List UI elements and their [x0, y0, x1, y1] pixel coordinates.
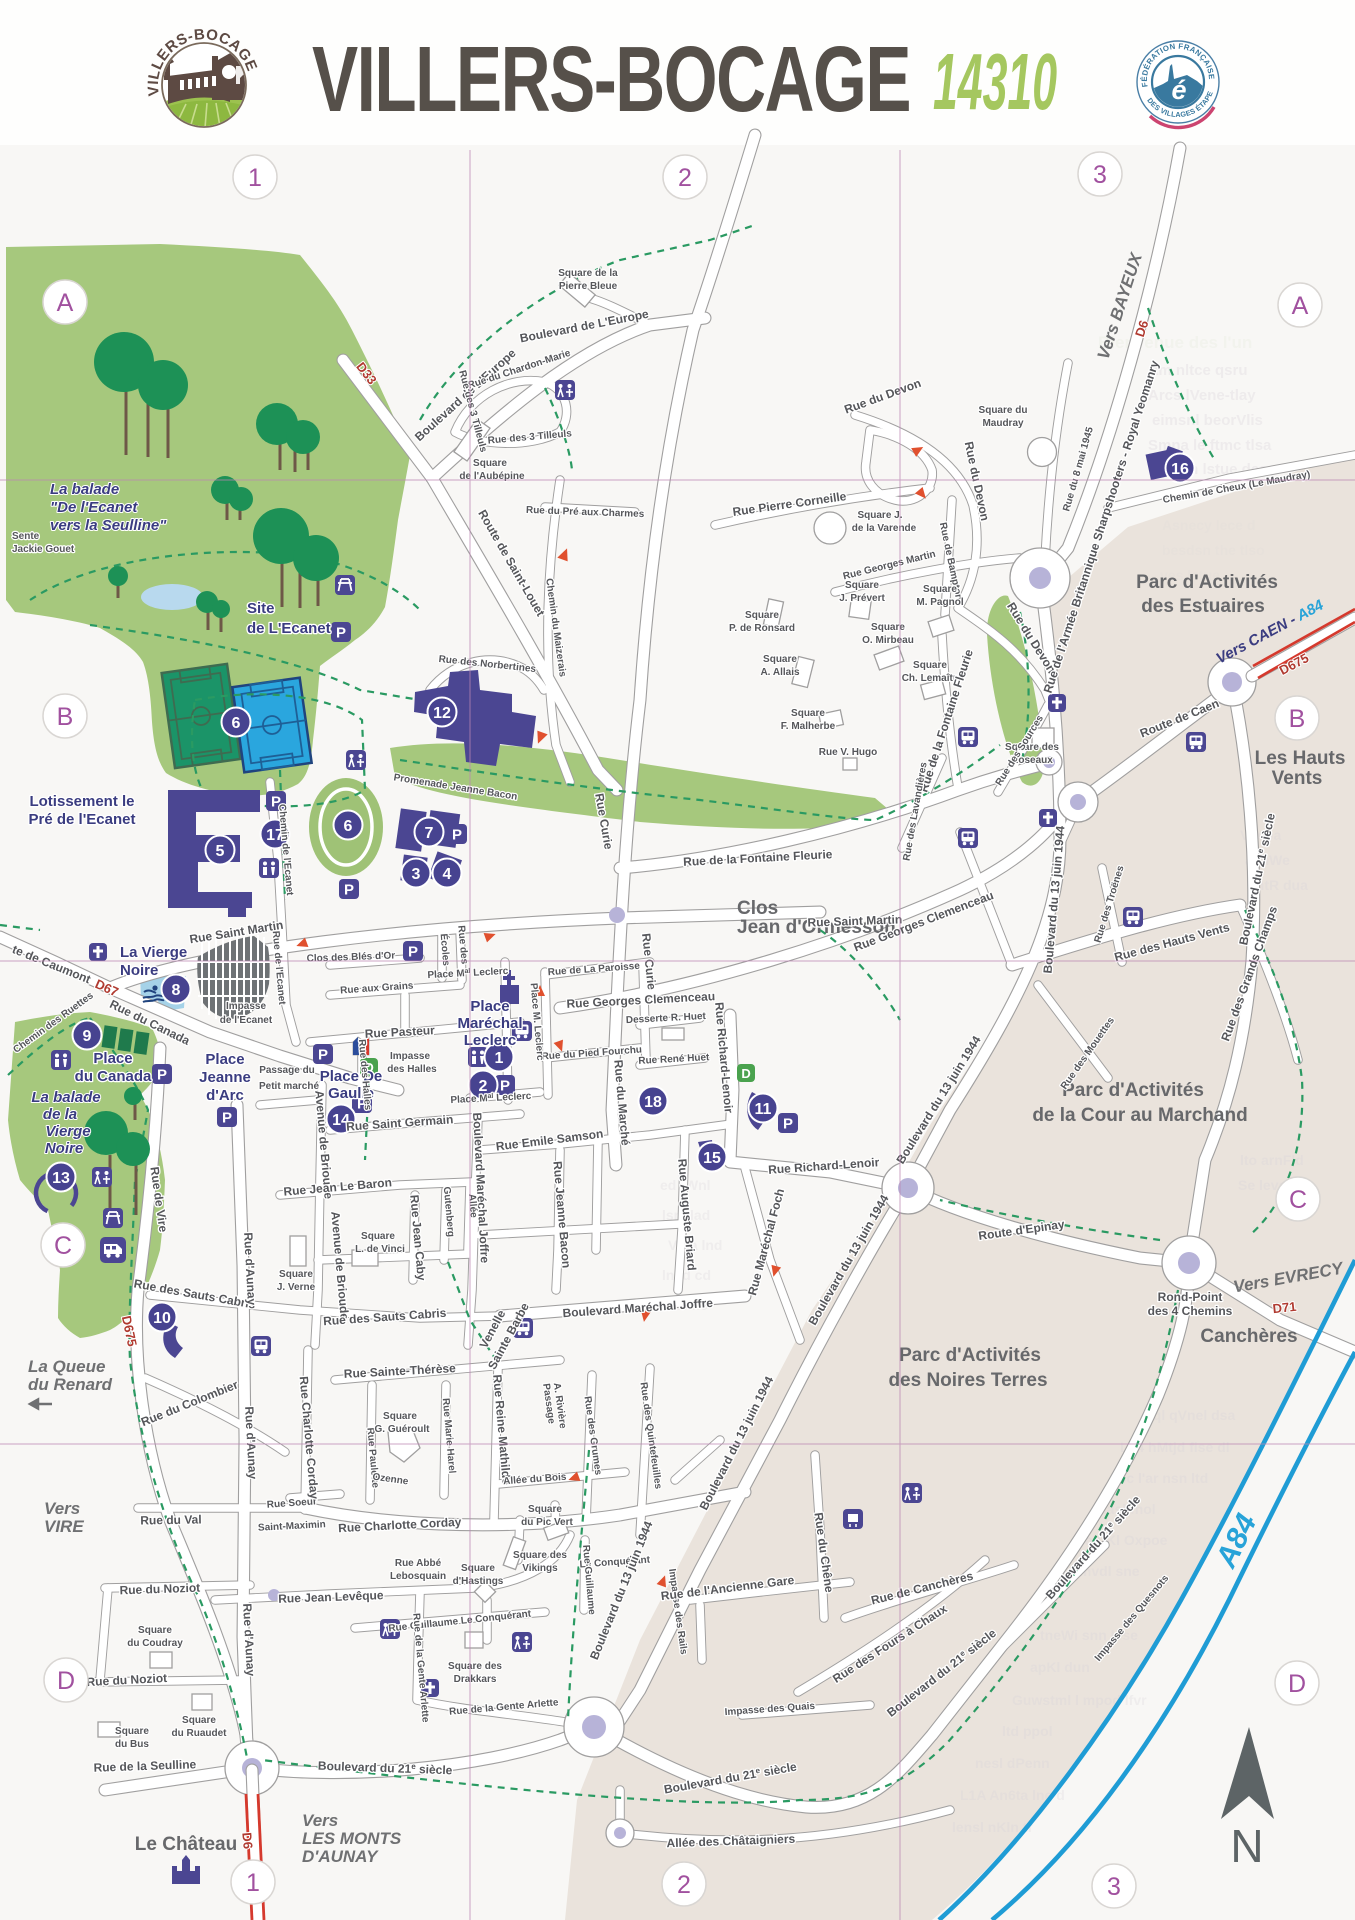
svg-text:N: N — [1230, 1820, 1263, 1872]
svg-text:Rue du Noziot: Rue du Noziot — [119, 1581, 200, 1598]
svg-text:eimsnl beorVlis: eimsnl beorVlis — [1152, 412, 1263, 429]
svg-text:La Queue: La Queue — [28, 1357, 105, 1376]
svg-text:Sente: Sente — [12, 531, 40, 542]
svg-text:de la: de la — [43, 1106, 77, 1123]
svg-text:10: 10 — [153, 1310, 171, 1327]
svg-text:Lebosquain: Lebosquain — [390, 1571, 446, 1582]
svg-text:L. de Vinci: L. de Vinci — [355, 1244, 405, 1255]
svg-text:Vers: Vers — [302, 1811, 338, 1830]
svg-text:Vikings: Vikings — [522, 1563, 558, 1574]
svg-text:Place: Place — [470, 998, 509, 1015]
svg-text:apKl dun: apKl dun — [1030, 1659, 1090, 1675]
svg-text:Asnecy lece d: Asnecy lece d — [1162, 517, 1255, 533]
svg-text:Impasse: Impasse — [390, 1051, 430, 1062]
svg-text:Maudray: Maudray — [982, 418, 1024, 429]
svg-text:D'AUNAY: D'AUNAY — [302, 1847, 379, 1866]
svg-text:D71: D71 — [1272, 1299, 1297, 1316]
svg-text:A. Allais: A. Allais — [760, 667, 800, 678]
svg-text:Lotissement le: Lotissement le — [29, 793, 134, 810]
svg-text:9: 9 — [83, 1028, 92, 1045]
svg-text:"De l'Ecanet: "De l'Ecanet — [50, 499, 138, 516]
svg-text:Pré de l'Ecanet: Pré de l'Ecanet — [29, 811, 136, 828]
svg-text:Square: Square — [791, 708, 825, 719]
svg-text:Drakkars: Drakkars — [454, 1674, 497, 1685]
svg-text:15: 15 — [703, 1150, 721, 1167]
svg-text:11: 11 — [755, 1101, 772, 1118]
svg-text:G. Guéroult: G. Guéroult — [375, 1424, 431, 1435]
svg-text:D6: D6 — [239, 1832, 255, 1850]
svg-text:13: 13 — [52, 1170, 70, 1187]
svg-text:de l'Ecanet: de l'Ecanet — [220, 1015, 273, 1026]
svg-text:besdsn the tlso: besdsn the tlso — [1162, 542, 1265, 558]
svg-text:du Renard: du Renard — [28, 1375, 113, 1394]
svg-text:Square: Square — [279, 1269, 313, 1280]
svg-text:Parc d'Activités: Parc d'Activités — [1062, 1080, 1204, 1101]
svg-text:3: 3 — [1093, 161, 1107, 189]
svg-text:La Vierge: La Vierge — [120, 944, 187, 961]
svg-text:Vers: Vers — [44, 1499, 80, 1518]
svg-text:12: 12 — [433, 705, 451, 722]
svg-text:Place: Place — [93, 1050, 132, 1067]
svg-text:LES MONTS: LES MONTS — [302, 1829, 402, 1848]
svg-text:Maréchal: Maréchal — [457, 1015, 522, 1032]
svg-text:1: 1 — [495, 1050, 504, 1067]
svg-text:Square: Square — [473, 458, 507, 469]
svg-text:D: D — [57, 1667, 75, 1695]
svg-text:6: 6 — [344, 818, 353, 835]
svg-text:Pierre Bleue: Pierre Bleue — [559, 281, 618, 292]
svg-text:2: 2 — [678, 164, 692, 192]
svg-text:Bienvenue des l'un: Bienvenue des l'un — [1098, 333, 1252, 352]
svg-text:Clos: Clos — [737, 898, 778, 919]
svg-text:B: B — [57, 703, 74, 731]
svg-text:Site: Site — [247, 600, 275, 617]
svg-text:M. Pagnol: M. Pagnol — [916, 597, 963, 608]
svg-text:ltd ppol: ltd ppol — [1002, 1723, 1053, 1739]
svg-text:Canchères: Canchères — [1200, 1326, 1297, 1347]
svg-text:Square de la: Square de la — [558, 268, 618, 279]
svg-text:Square: Square — [923, 584, 957, 595]
svg-text:des Estuaires: des Estuaires — [1141, 596, 1265, 617]
svg-text:8: 8 — [172, 982, 181, 999]
svg-text:14310: 14310 — [933, 37, 1057, 126]
svg-text:d'Hastings: d'Hastings — [453, 1576, 504, 1587]
svg-text:A: A — [1292, 292, 1309, 320]
svg-text:du Bus: du Bus — [115, 1739, 149, 1750]
svg-text:Square: Square — [913, 660, 947, 671]
svg-text:A: A — [57, 289, 74, 317]
svg-text:Square: Square — [115, 1726, 149, 1737]
svg-text:Allée: Allée — [466, 1193, 479, 1218]
svg-text:Arcs lVene-tlay: Arcs lVene-tlay — [1148, 387, 1256, 404]
svg-text:vers la Seulline": vers la Seulline" — [50, 517, 167, 534]
svg-text:Noire: Noire — [45, 1140, 83, 1157]
svg-text:Rue Abbé: Rue Abbé — [395, 1558, 442, 1569]
svg-text:é: é — [1171, 75, 1186, 105]
svg-text:Square: Square — [138, 1625, 172, 1636]
svg-text:3: 3 — [1107, 1873, 1121, 1901]
svg-text:Rue V. Hugo: Rue V. Hugo — [819, 747, 878, 758]
svg-text:7: 7 — [425, 825, 434, 842]
svg-text:F. Malherbe: F. Malherbe — [781, 721, 836, 732]
svg-text:Square: Square — [383, 1411, 417, 1422]
svg-text:du Coudray: du Coudray — [127, 1638, 183, 1649]
svg-text:B: B — [1289, 705, 1306, 733]
svg-text:Rond-Point: Rond-Point — [1158, 1290, 1223, 1304]
svg-text:Place: Place — [205, 1051, 244, 1068]
svg-text:Le Château: Le Château — [135, 1834, 237, 1855]
svg-text:J. Prévert: J. Prévert — [839, 593, 885, 604]
svg-text:Square: Square — [763, 654, 797, 665]
svg-text:Leclerc: Leclerc — [464, 1032, 517, 1049]
svg-text:Square des: Square des — [513, 1550, 567, 1561]
svg-text:am nltce qsru: am nltce qsru — [1150, 362, 1248, 379]
svg-text:Square du: Square du — [979, 405, 1028, 416]
svg-text:Impasse: Impasse — [226, 1001, 266, 1012]
svg-text:6: 6 — [232, 715, 241, 732]
svg-text:des Halles: des Halles — [387, 1064, 437, 1075]
svg-text:C: C — [1289, 1186, 1307, 1214]
svg-text:La balade: La balade — [50, 481, 119, 498]
svg-text:Jackie Gouet: Jackie Gouet — [12, 544, 75, 555]
svg-text:des 4 Chemins: des 4 Chemins — [1148, 1304, 1233, 1318]
svg-text:16: 16 — [1171, 461, 1189, 478]
svg-text:Rue du Val: Rue du Val — [140, 1512, 202, 1527]
svg-text:18: 18 — [644, 1094, 662, 1111]
svg-text:Les Hauts: Les Hauts — [1255, 748, 1346, 769]
svg-text:des Noires Terres: des Noires Terres — [888, 1370, 1047, 1391]
svg-text:Vierge: Vierge — [45, 1123, 90, 1140]
svg-text:Square: Square — [461, 1563, 495, 1574]
svg-text:1: 1 — [248, 164, 262, 192]
svg-text:du Canada: du Canada — [75, 1068, 152, 1085]
svg-text:Petit marché: Petit marché — [259, 1081, 319, 1092]
svg-text:J. Verne: J. Verne — [277, 1282, 316, 1293]
svg-text:de la Cour au Marchand: de la Cour au Marchand — [1032, 1105, 1247, 1126]
svg-text:nesl dPenn: nesl dPenn — [975, 1755, 1050, 1771]
svg-text:D: D — [1288, 1670, 1306, 1698]
svg-text:de L'Ecanet: de L'Ecanet — [247, 620, 331, 637]
svg-text:du Ruaudet: du Ruaudet — [172, 1728, 228, 1739]
svg-text:Square J.: Square J. — [857, 510, 902, 521]
svg-text:3: 3 — [412, 866, 421, 883]
svg-text:Square: Square — [361, 1231, 395, 1242]
svg-text:Square: Square — [745, 610, 779, 621]
svg-text:Place De: Place De — [320, 1068, 383, 1085]
svg-text:Square: Square — [182, 1715, 216, 1726]
svg-text:La balade: La balade — [31, 1089, 100, 1106]
svg-text:Jeanne: Jeanne — [199, 1069, 251, 1086]
svg-text:d'Arc: d'Arc — [206, 1087, 244, 1104]
svg-text:VIRE: VIRE — [44, 1517, 84, 1536]
svg-text:4: 4 — [443, 866, 452, 883]
svg-text:5: 5 — [216, 843, 225, 860]
svg-text:Passage du: Passage du — [259, 1065, 315, 1076]
svg-text:Vents: Vents — [1272, 768, 1323, 789]
svg-text:1: 1 — [246, 1869, 260, 1897]
svg-text:Noire: Noire — [120, 962, 158, 979]
svg-text:Square des: Square des — [448, 1661, 502, 1672]
svg-text:VILLERS-BOCAGE: VILLERS-BOCAGE — [312, 27, 910, 131]
svg-text:2: 2 — [677, 1871, 691, 1899]
svg-text:Square: Square — [528, 1504, 562, 1515]
svg-text:de la Varende: de la Varende — [852, 523, 917, 534]
svg-text:C: C — [54, 1232, 72, 1260]
svg-text:Parc d'Activités: Parc d'Activités — [1136, 572, 1278, 593]
svg-text:Parc d'Activités: Parc d'Activités — [899, 1345, 1041, 1366]
svg-text:du Pic Vert: du Pic Vert — [521, 1517, 573, 1528]
svg-text:P. de Ronsard: P. de Ronsard — [729, 623, 795, 634]
svg-text:O. Mirbeau: O. Mirbeau — [862, 635, 914, 646]
svg-text:Square: Square — [845, 580, 879, 591]
